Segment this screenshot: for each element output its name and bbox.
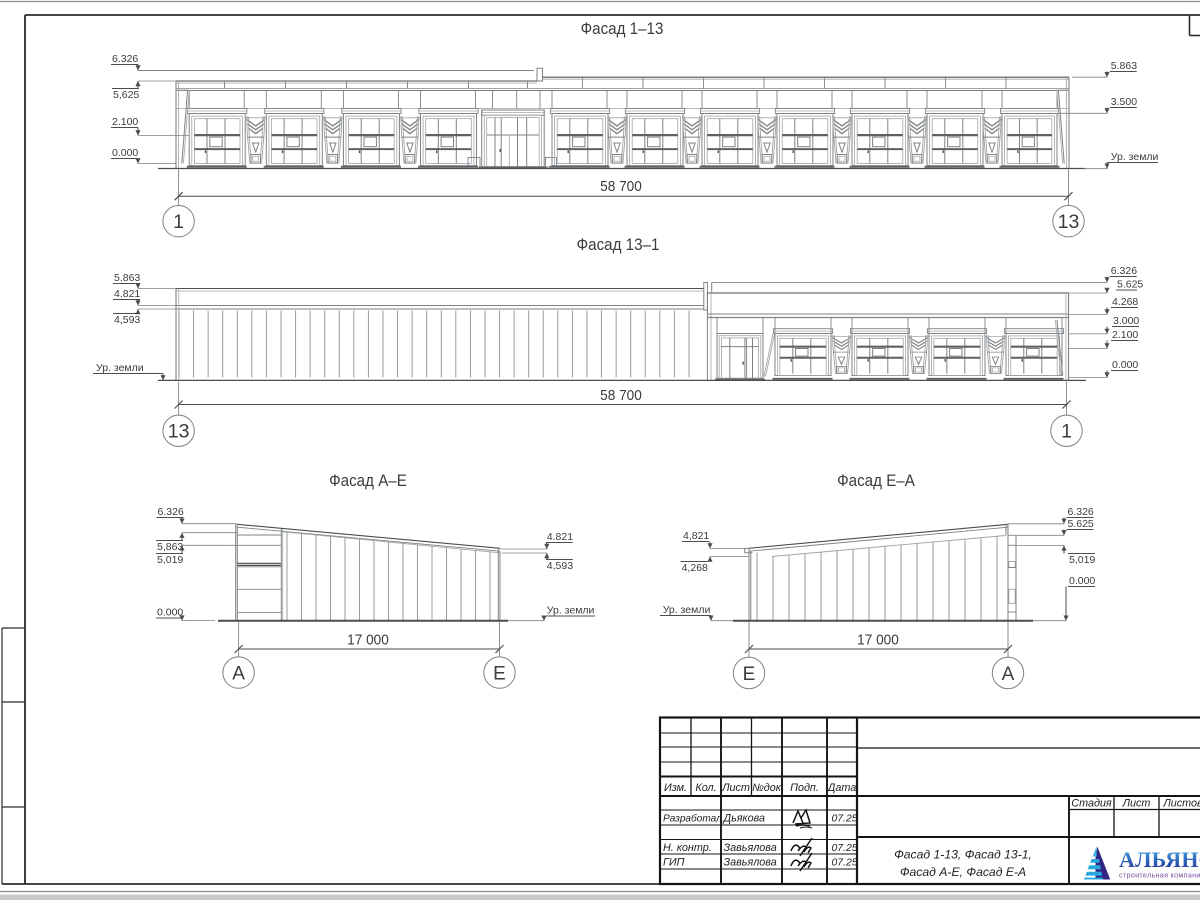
svg-text:Фасад 1-13, Фасад 13-1,: Фасад 1-13, Фасад 13-1, (894, 848, 1032, 862)
svg-text:6.326: 6.326 (1111, 265, 1137, 277)
svg-text:17 000: 17 000 (347, 631, 389, 647)
svg-text:5.863: 5.863 (114, 272, 140, 284)
svg-text:Ур. земли: Ур. земли (663, 604, 711, 616)
svg-text:13: 13 (1058, 211, 1080, 233)
svg-text:6.326: 6.326 (112, 53, 138, 65)
svg-text:0.000: 0.000 (112, 147, 138, 159)
svg-text:2.100: 2.100 (112, 116, 138, 128)
svg-text:5,625: 5,625 (113, 89, 139, 101)
svg-text:07.25: 07.25 (832, 858, 858, 869)
svg-text:Лист: Лист (721, 782, 750, 794)
svg-text:Дата: Дата (827, 782, 856, 794)
svg-text:58 700: 58 700 (600, 178, 642, 194)
svg-text:58 700: 58 700 (600, 387, 642, 403)
svg-text:4,593: 4,593 (114, 314, 140, 326)
svg-text:4.821: 4.821 (114, 288, 140, 300)
svg-text:13: 13 (168, 421, 190, 443)
svg-text:3.500: 3.500 (1111, 96, 1137, 108)
svg-text:А: А (232, 663, 245, 684)
svg-text:Ур. земли: Ур. земли (547, 605, 595, 617)
svg-text:4.268: 4.268 (1112, 296, 1138, 308)
svg-text:Фасад 1–13: Фасад 1–13 (581, 20, 664, 38)
svg-text:4,268: 4,268 (682, 562, 708, 574)
svg-text:Разработал: Разработал (663, 813, 722, 825)
svg-text:Е: Е (493, 663, 506, 684)
svg-text:Ур. земли: Ур. земли (96, 362, 144, 374)
svg-text:Е: Е (743, 664, 756, 685)
svg-text:ГИП: ГИП (663, 857, 685, 869)
svg-text:Ур. земли: Ур. земли (1111, 151, 1159, 163)
svg-text:Лист: Лист (1122, 798, 1151, 810)
svg-text:Кол.: Кол. (695, 782, 716, 794)
svg-text:5,863: 5,863 (157, 541, 183, 553)
svg-text:17 000: 17 000 (857, 631, 899, 647)
svg-text:6.326: 6.326 (158, 506, 184, 518)
svg-text:2.100: 2.100 (1112, 329, 1138, 341)
svg-text:А: А (1002, 664, 1015, 685)
svg-text:07.25: 07.25 (832, 843, 858, 854)
svg-text:0.000: 0.000 (1069, 575, 1095, 587)
svg-text:1: 1 (1061, 421, 1072, 443)
svg-text:5.625: 5.625 (1068, 518, 1094, 530)
svg-text:Фасад 13–1: Фасад 13–1 (577, 236, 660, 254)
svg-text:Фасад А-Е, Фасад Е-А: Фасад А-Е, Фасад Е-А (900, 865, 1026, 879)
svg-text:Изм.: Изм. (664, 782, 687, 794)
svg-text:4.821: 4.821 (547, 531, 573, 543)
svg-text:Подп.: Подп. (790, 782, 819, 794)
svg-text:Дьякова: Дьякова (723, 813, 766, 825)
svg-text:Листов: Листов (1162, 798, 1200, 810)
svg-text:Завьялова: Завьялова (724, 842, 777, 854)
svg-text:АЛЬЯНС: АЛЬЯНС (1119, 847, 1200, 872)
svg-text:6.326: 6.326 (1068, 506, 1094, 518)
svg-text:Завьялова: Завьялова (724, 857, 777, 869)
svg-text:№док: №док (752, 782, 782, 794)
svg-text:1: 1 (173, 211, 184, 233)
svg-text:3.000: 3.000 (1113, 315, 1139, 327)
svg-text:строительная компания: строительная компания (1119, 871, 1200, 880)
svg-text:4,593: 4,593 (547, 560, 573, 572)
svg-text:0.000: 0.000 (1112, 359, 1138, 371)
svg-text:5.863: 5.863 (1111, 60, 1137, 72)
svg-text:5,019: 5,019 (157, 554, 183, 566)
svg-text:5.625: 5.625 (1117, 279, 1143, 291)
svg-text:5,019: 5,019 (1069, 554, 1095, 566)
svg-text:07.25: 07.25 (832, 814, 858, 825)
svg-text:Фасад Е–А: Фасад Е–А (837, 472, 915, 490)
svg-text:0.000: 0.000 (157, 607, 183, 619)
svg-text:Фасад А–Е: Фасад А–Е (329, 472, 407, 490)
svg-text:4,821: 4,821 (683, 530, 709, 542)
svg-text:Стадия: Стадия (1071, 798, 1112, 810)
svg-text:Н. контр.: Н. контр. (663, 842, 712, 854)
